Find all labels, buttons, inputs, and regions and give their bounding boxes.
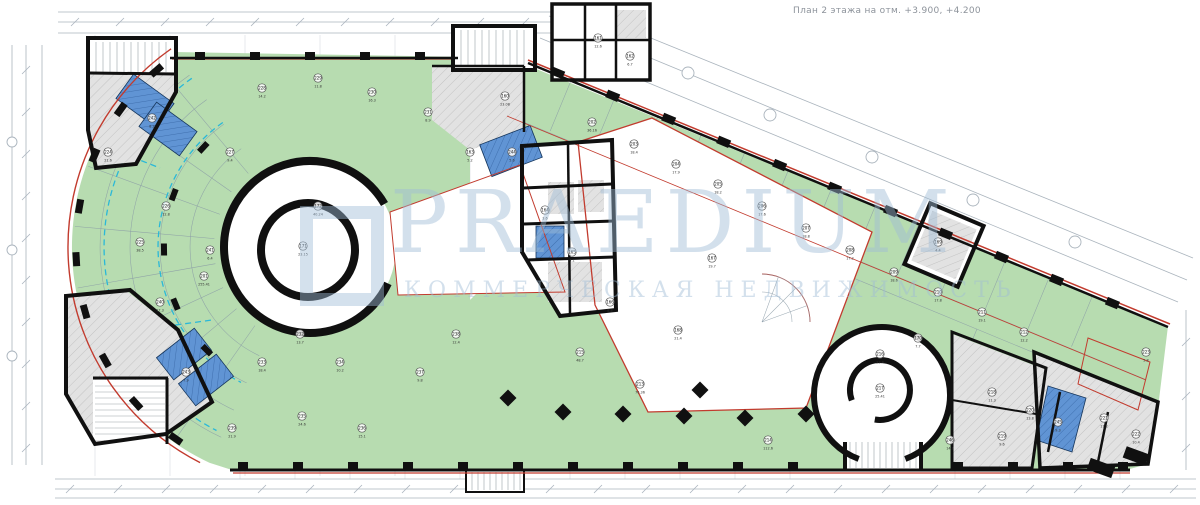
svg-text:168: 168 (674, 328, 682, 333)
svg-text:18.4: 18.4 (630, 151, 638, 155)
svg-text:228: 228 (258, 86, 266, 91)
svg-text:219: 219 (998, 434, 1006, 439)
svg-text:232: 232 (296, 332, 304, 337)
room-tag: 23812.4 (452, 330, 460, 345)
svg-text:18.8: 18.8 (802, 235, 810, 239)
svg-text:201: 201 (200, 274, 208, 279)
room-tag: 20417.9 (672, 160, 680, 175)
svg-text:217: 217 (876, 386, 884, 391)
svg-text:221: 221 (1100, 416, 1108, 421)
svg-text:211: 211 (978, 310, 986, 315)
room-tag: 21623.4 (876, 350, 884, 365)
svg-text:234: 234 (336, 360, 344, 365)
svg-text:164: 164 (541, 208, 549, 213)
room-tag: 23016.3 (368, 88, 376, 103)
svg-text:10.4: 10.4 (1132, 441, 1140, 445)
grid-axis-bubble (7, 351, 17, 361)
svg-text:212: 212 (1020, 330, 1028, 335)
svg-text:14.2: 14.2 (258, 95, 266, 99)
svg-text:241: 241 (206, 248, 214, 253)
svg-text:222: 222 (1132, 432, 1140, 437)
room-tag: 21212.2 (1020, 328, 1028, 343)
svg-text:8.8: 8.8 (607, 309, 612, 313)
svg-text:7.7: 7.7 (915, 345, 920, 349)
room-tag: 20918.6 (890, 268, 898, 283)
svg-text:169: 169 (934, 240, 942, 245)
stair-topmid (455, 28, 533, 68)
room-tag: 23615.1 (358, 424, 366, 439)
svg-text:218: 218 (988, 390, 996, 395)
svg-text:5.8: 5.8 (1143, 359, 1148, 363)
svg-text:17.9: 17.9 (672, 171, 680, 175)
svg-text:236: 236 (358, 426, 366, 431)
room-tag: 16821.4 (674, 326, 682, 341)
grid-axis-bubble (682, 67, 694, 79)
grid-axis-bubble (1069, 236, 1081, 248)
svg-text:255.41: 255.41 (198, 283, 210, 287)
svg-text:40.24: 40.24 (313, 213, 323, 217)
svg-text:210: 210 (934, 290, 942, 295)
floor-plan-sheet: 16023.0816112.61626.71635.21643.61654.11… (0, 0, 1200, 505)
svg-text:4.4: 4.4 (935, 249, 940, 253)
room-tag: 20718.8 (802, 224, 810, 239)
room-tag: 20617.6 (758, 202, 766, 217)
svg-text:225: 225 (136, 240, 144, 245)
room-tag: 24017.3 (156, 298, 164, 313)
svg-text:7.9: 7.9 (183, 379, 188, 383)
svg-text:246: 246 (946, 438, 954, 443)
svg-text:17.8: 17.8 (934, 299, 942, 303)
room-tag: 21811.3 (988, 388, 996, 403)
svg-text:202: 202 (588, 120, 596, 125)
room-tag: 24614.8 (946, 436, 954, 451)
room-tag: 22421.6 (104, 148, 112, 163)
room-tag: 22814.2 (258, 84, 266, 99)
room-tag: 20817.2 (846, 246, 854, 261)
svg-text:9.6: 9.6 (999, 443, 1004, 447)
svg-text:216: 216 (876, 352, 884, 357)
svg-text:21.6: 21.6 (104, 159, 112, 163)
svg-text:242: 242 (148, 116, 156, 121)
svg-text:12.2: 12.2 (1020, 339, 1028, 343)
svg-text:214: 214 (764, 438, 772, 443)
svg-text:165: 165 (568, 250, 576, 255)
svg-text:4.1: 4.1 (569, 259, 574, 263)
svg-text:230: 230 (368, 90, 376, 95)
grid-axis-bubble (967, 194, 979, 206)
room-tag: 16112.6 (594, 34, 602, 49)
grid-axis-bubble (866, 151, 878, 163)
svg-text:226: 226 (162, 204, 170, 209)
svg-text:204: 204 (672, 162, 680, 167)
svg-text:11.3: 11.3 (988, 399, 996, 403)
svg-text:18.6: 18.6 (890, 279, 898, 283)
svg-text:224: 224 (104, 150, 112, 155)
svg-text:203: 203 (630, 142, 638, 147)
room-tag: 23410.2 (336, 358, 344, 373)
svg-text:21.9: 21.9 (228, 435, 236, 439)
svg-text:163: 163 (466, 150, 474, 155)
svg-text:17.6: 17.6 (758, 213, 766, 217)
room-tag: 23318.4 (258, 358, 266, 373)
svg-text:205: 205 (714, 182, 722, 187)
svg-text:5.2: 5.2 (467, 159, 472, 163)
svg-text:18.2: 18.2 (714, 191, 722, 195)
room-tag: 23921.9 (228, 424, 236, 439)
svg-text:161: 161 (594, 36, 602, 41)
room-tag: 22210.4 (1132, 430, 1140, 445)
svg-text:12.8: 12.8 (162, 213, 170, 217)
room-tag: 23213.7 (296, 330, 304, 345)
svg-text:235: 235 (298, 414, 306, 419)
svg-text:18.4: 18.4 (258, 369, 266, 373)
svg-text:238: 238 (452, 332, 460, 337)
svg-text:245: 245 (1054, 420, 1062, 425)
svg-text:239: 239 (228, 426, 236, 431)
svg-text:19.1: 19.1 (978, 319, 986, 323)
svg-text:229: 229 (314, 76, 322, 81)
stair-bottomleft (93, 380, 167, 440)
svg-text:8.2: 8.2 (149, 125, 154, 129)
room-tag: 22612.8 (162, 202, 170, 217)
blue-stairwell (536, 226, 564, 258)
svg-text:23.08: 23.08 (500, 103, 510, 107)
svg-text:244: 244 (508, 150, 516, 155)
svg-text:19.7: 19.7 (708, 265, 716, 269)
svg-text:15.1: 15.1 (358, 435, 366, 439)
svg-text:25.41: 25.41 (875, 395, 885, 399)
plan-title: План 2 этажа на отм. +3.900, +4.200 (772, 6, 1002, 16)
svg-text:38.5: 38.5 (136, 249, 144, 253)
room-tag: 23524.6 (298, 412, 306, 427)
svg-text:8.9: 8.9 (425, 119, 430, 123)
svg-text:10.2: 10.2 (336, 369, 344, 373)
svg-text:21.4: 21.4 (674, 337, 682, 341)
svg-text:24.6: 24.6 (298, 423, 306, 427)
svg-text:220: 220 (1026, 408, 1034, 413)
svg-text:13.7: 13.7 (296, 341, 304, 345)
room-tag: 22013.8 (1026, 406, 1034, 421)
room-tag: 22117.2 (1100, 414, 1108, 429)
grid-axis-bubble (7, 245, 17, 255)
svg-text:167: 167 (708, 256, 716, 261)
svg-text:9.8: 9.8 (417, 379, 422, 383)
svg-text:243: 243 (182, 370, 190, 375)
room-tag: 1635.2 (466, 148, 474, 163)
svg-text:16.3: 16.3 (368, 99, 376, 103)
room-tag: 22911.8 (314, 74, 322, 89)
svg-text:9.3: 9.3 (1055, 429, 1060, 433)
svg-text:207: 207 (802, 226, 810, 231)
room-tag: 22538.5 (136, 238, 144, 253)
svg-text:11.8: 11.8 (314, 85, 322, 89)
svg-text:112.6: 112.6 (763, 447, 773, 451)
svg-text:6.4: 6.4 (207, 257, 212, 261)
svg-text:231: 231 (424, 110, 432, 115)
svg-text:17.2: 17.2 (846, 257, 854, 261)
floor-plan-canvas: 16023.0816112.61626.71635.21643.61654.11… (0, 0, 1200, 505)
svg-text:233: 233 (258, 360, 266, 365)
svg-text:23.4: 23.4 (876, 361, 884, 365)
svg-text:5.6: 5.6 (509, 159, 514, 163)
room-tag: 21017.8 (934, 288, 942, 303)
svg-text:223: 223 (1142, 350, 1150, 355)
grid-axis-bubble (764, 109, 776, 121)
svg-text:9.4: 9.4 (227, 159, 232, 163)
svg-text:162: 162 (626, 54, 634, 59)
svg-text:206: 206 (758, 204, 766, 209)
room-tag: 21119.1 (978, 308, 986, 323)
svg-text:160: 160 (501, 94, 509, 99)
svg-text:209: 209 (890, 270, 898, 275)
svg-text:17.2: 17.2 (1100, 425, 1108, 429)
svg-text:12.4: 12.4 (452, 341, 460, 345)
svg-text:166: 166 (606, 300, 614, 305)
svg-text:14.8: 14.8 (946, 447, 954, 451)
room-tag: 21548.7 (576, 348, 584, 363)
svg-text:171: 171 (299, 244, 307, 249)
room-tag: 16719.7 (708, 254, 716, 269)
svg-text:13.8: 13.8 (1026, 417, 1034, 421)
svg-text:237: 237 (416, 370, 424, 375)
svg-text:6.7: 6.7 (627, 63, 632, 67)
svg-text:213: 213 (636, 382, 644, 387)
svg-text:240: 240 (156, 300, 164, 305)
svg-text:36.16: 36.16 (587, 129, 597, 133)
room-tag: 20518.2 (714, 180, 722, 195)
svg-text:170: 170 (914, 336, 922, 341)
svg-text:12.6: 12.6 (594, 45, 602, 49)
svg-text:48.7: 48.7 (576, 359, 584, 363)
svg-text:3.6: 3.6 (542, 217, 547, 221)
svg-text:23.15: 23.15 (298, 253, 308, 257)
svg-text:208: 208 (846, 248, 854, 253)
room-tag: 20318.4 (630, 140, 638, 155)
svg-text:227: 227 (226, 150, 234, 155)
svg-text:215: 215 (576, 350, 584, 355)
svg-text:76.36: 76.36 (635, 391, 645, 395)
grid-axis-bubble (7, 137, 17, 147)
svg-text:17.3: 17.3 (156, 309, 164, 313)
svg-text:172: 172 (314, 204, 322, 209)
